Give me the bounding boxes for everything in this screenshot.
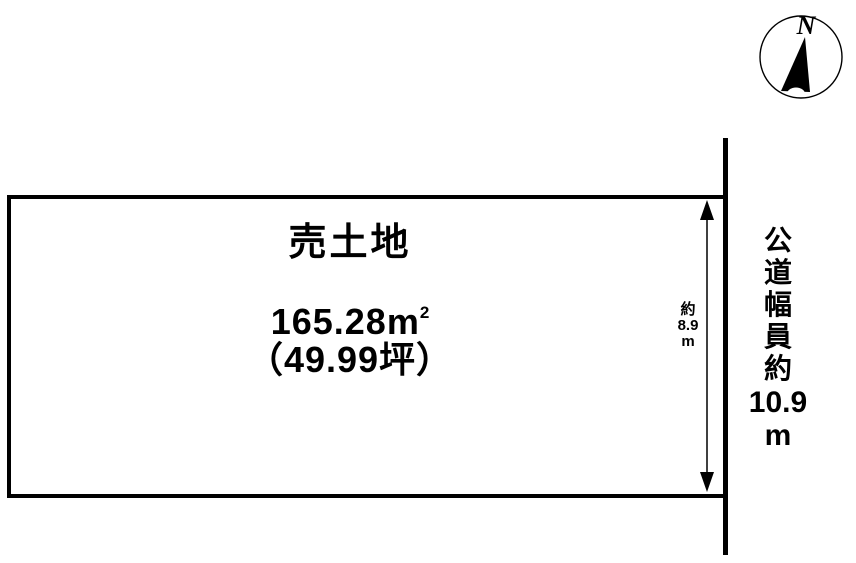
depth-dimension-approx: 約 xyxy=(663,302,713,318)
road-label-char: 公 xyxy=(764,225,792,257)
road-label-char: 員 xyxy=(764,321,792,353)
road-width-label: 公 道 幅 員 約 10.9 m xyxy=(744,225,812,451)
road-width-unit: m xyxy=(765,421,792,451)
compass-icon: N xyxy=(758,13,848,103)
plot-area-tsubo: （49.99坪） xyxy=(100,341,600,379)
dimension-arrowhead-top xyxy=(700,200,714,220)
road-label-char: 約 xyxy=(764,353,792,385)
road-label-char: 道 xyxy=(764,257,792,289)
compass-needle-icon xyxy=(781,37,810,92)
road-width-value: 10.9 xyxy=(749,385,807,421)
plot-title: 売土地 xyxy=(100,222,600,264)
depth-dimension-unit: m xyxy=(663,334,713,350)
plot-area-sqm-value: 165.28m xyxy=(271,301,420,342)
plot-area-sqm: 165.28m2 xyxy=(100,294,600,341)
dimension-arrowhead-bottom xyxy=(700,472,714,492)
depth-dimension-label: 約 8.9 m xyxy=(663,302,713,350)
plot-area-sqm-exponent: 2 xyxy=(420,303,429,322)
compass: N xyxy=(758,13,848,103)
road-label-char: 幅 xyxy=(764,289,792,321)
road-boundary-line xyxy=(723,138,728,555)
depth-dimension-value: 8.9 xyxy=(663,318,713,334)
land-plot-diagram: { "colors": { "ink": "#000000", "backgro… xyxy=(0,0,856,563)
plot-labels: 売土地 165.28m2 （49.99坪） xyxy=(100,222,600,379)
compass-north-label: N xyxy=(796,13,817,40)
plot-area-block: 165.28m2 （49.99坪） xyxy=(100,294,600,379)
